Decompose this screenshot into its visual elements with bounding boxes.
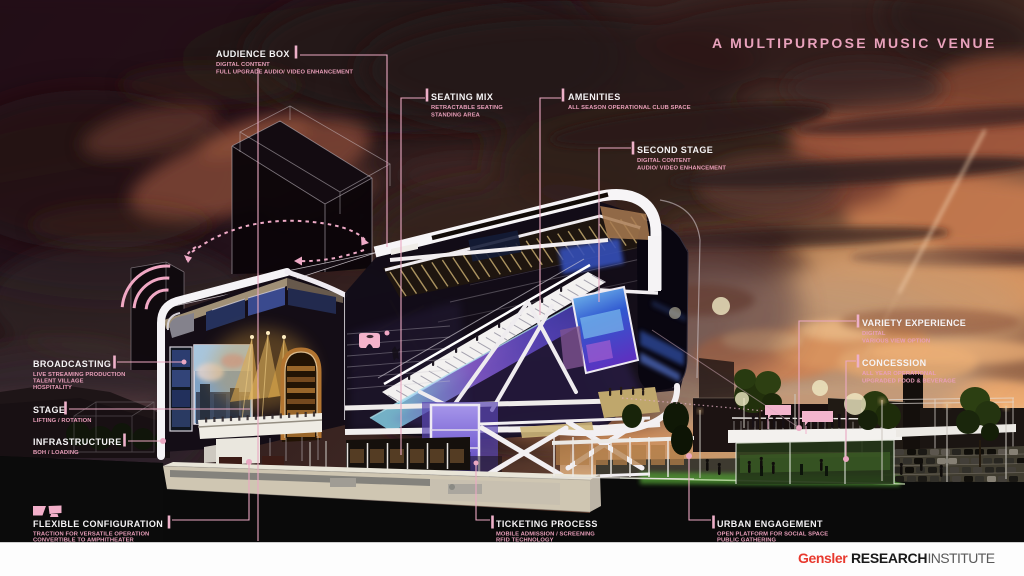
svg-text:RETRACTABLE SEATING: RETRACTABLE SEATING <box>431 105 503 111</box>
svg-text:DIGITAL CONTENT: DIGITAL CONTENT <box>216 62 270 68</box>
svg-text:SECOND STAGE: SECOND STAGE <box>637 145 713 155</box>
svg-text:DIGITAL CONTENT: DIGITAL CONTENT <box>637 158 691 164</box>
svg-text:HOSPITALITY: HOSPITALITY <box>33 385 72 391</box>
svg-text:CONCESSION: CONCESSION <box>862 358 927 368</box>
svg-text:UPGRADED FOOD & BEVERAGE: UPGRADED FOOD & BEVERAGE <box>862 379 956 385</box>
svg-text:VARIETY EXPERIENCE: VARIETY EXPERIENCE <box>862 318 966 328</box>
svg-text:BOH / LOADING: BOH / LOADING <box>33 450 79 456</box>
svg-text:AMENITIES: AMENITIES <box>568 92 621 102</box>
svg-text:INFRASTRUCTURE: INFRASTRUCTURE <box>33 437 122 447</box>
svg-text:ALL YEAR OPERATIONAL: ALL YEAR OPERATIONAL <box>862 371 937 377</box>
svg-text:FULL UPGRADE AUDIO/ VIDEO ENHA: FULL UPGRADE AUDIO/ VIDEO ENHANCEMENT <box>216 70 353 76</box>
svg-text:Gensler: Gensler <box>798 550 848 566</box>
svg-text:A MULTIPURPOSE MUSIC VENUE: A MULTIPURPOSE MUSIC VENUE <box>712 35 997 51</box>
svg-text:LIVE STREAMING PRODUCTION: LIVE STREAMING PRODUCTION <box>33 372 125 378</box>
svg-text:STAGE: STAGE <box>33 405 65 415</box>
svg-text:URBAN ENGAGEMENT: URBAN ENGAGEMENT <box>717 519 823 529</box>
svg-text:VARIOUS VIEW OPTION: VARIOUS VIEW OPTION <box>862 339 930 345</box>
svg-text:DIGITAL: DIGITAL <box>862 331 886 337</box>
svg-text:SEATING MIX: SEATING MIX <box>431 92 493 102</box>
svg-text:STANDING AREA: STANDING AREA <box>431 113 481 119</box>
svg-text:INSTITUTE: INSTITUTE <box>928 550 995 566</box>
svg-text:FLEXIBLE CONFIGURATION: FLEXIBLE CONFIGURATION <box>33 519 163 529</box>
svg-text:AUDIO/ VIDEO ENHANCEMENT: AUDIO/ VIDEO ENHANCEMENT <box>637 166 726 172</box>
svg-text:RESEARCH: RESEARCH <box>851 550 927 566</box>
svg-text:ALL SEASON OPERATIONAL CLUB SP: ALL SEASON OPERATIONAL CLUB SPACE <box>568 105 691 111</box>
svg-text:LIFTING / ROTATION: LIFTING / ROTATION <box>33 418 92 424</box>
svg-text:TALENT VILLAGE: TALENT VILLAGE <box>33 379 84 385</box>
svg-text:BROADCASTING: BROADCASTING <box>33 359 111 369</box>
svg-text:TICKETING PROCESS: TICKETING PROCESS <box>496 519 598 529</box>
svg-text:AUDIENCE BOX: AUDIENCE BOX <box>216 49 290 59</box>
